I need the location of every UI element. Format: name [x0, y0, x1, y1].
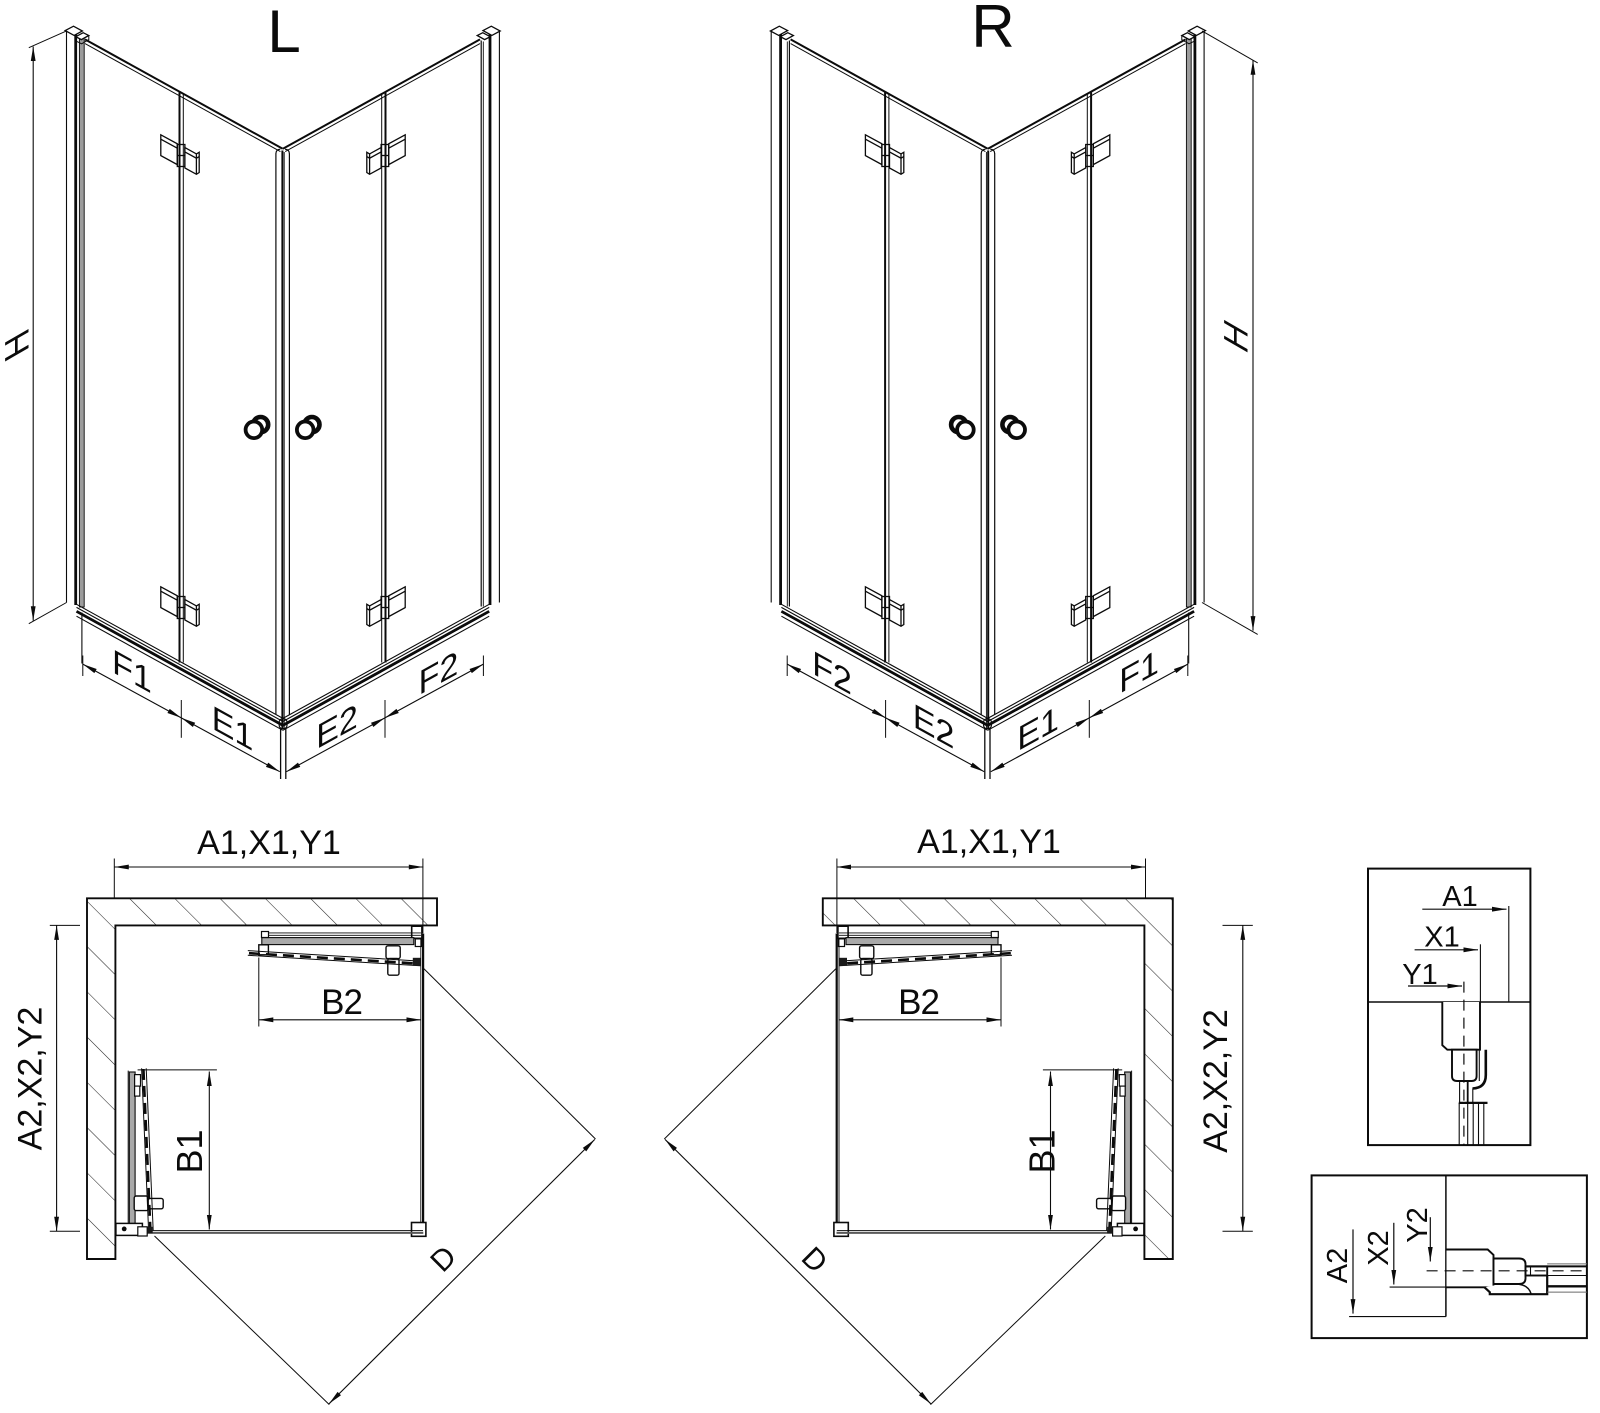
svg-text:L: L — [267, 0, 300, 65]
svg-text:A1: A1 — [1442, 881, 1477, 913]
svg-text:Y2: Y2 — [1402, 1207, 1434, 1242]
svg-text:B1: B1 — [169, 1129, 210, 1173]
svg-text:X1: X1 — [1424, 922, 1459, 954]
svg-text:B1: B1 — [1022, 1129, 1063, 1173]
svg-text:A1,X1,Y1: A1,X1,Y1 — [197, 824, 341, 862]
svg-text:A2: A2 — [1322, 1248, 1354, 1283]
svg-text:R: R — [971, 0, 1014, 60]
svg-text:H: H — [0, 322, 36, 368]
svg-text:D: D — [424, 1240, 463, 1279]
svg-text:H: H — [1217, 313, 1255, 359]
svg-text:A2,X2,Y2: A2,X2,Y2 — [1197, 1009, 1235, 1153]
svg-text:A1,X1,Y1: A1,X1,Y1 — [917, 823, 1061, 861]
svg-text:X2: X2 — [1363, 1230, 1395, 1265]
svg-text:B2: B2 — [898, 983, 939, 1022]
svg-text:Y1: Y1 — [1402, 959, 1437, 991]
svg-text:B2: B2 — [321, 983, 362, 1022]
svg-text:A2,X2,Y2: A2,X2,Y2 — [11, 1007, 49, 1151]
